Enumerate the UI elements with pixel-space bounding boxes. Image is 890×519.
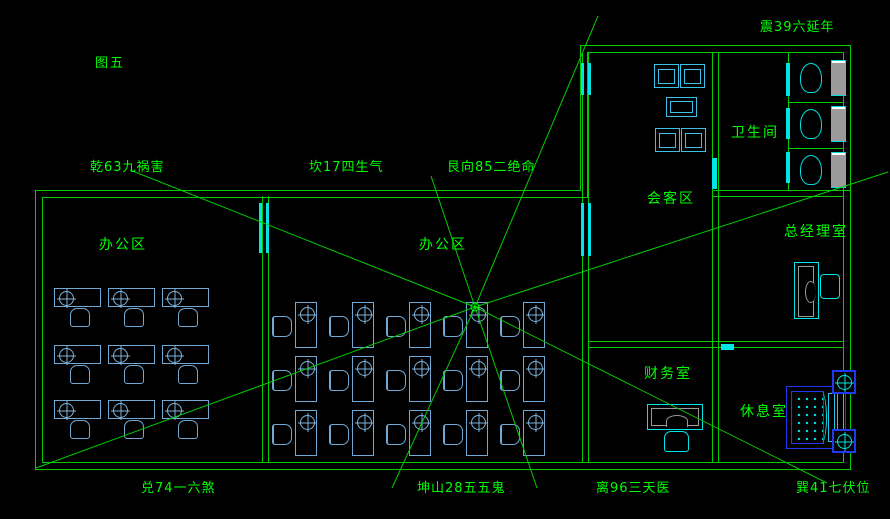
compass-label-gen: 艮向85二绝命 — [447, 161, 536, 174]
window-mark — [266, 203, 269, 253]
chair — [272, 424, 292, 445]
chair — [500, 370, 520, 391]
crosshair-icon — [837, 434, 852, 449]
chair — [124, 308, 144, 327]
desk — [108, 345, 155, 364]
desk — [409, 356, 431, 402]
figure-title: 图五 — [95, 57, 125, 70]
chair — [329, 316, 349, 337]
desk — [162, 345, 209, 364]
window-mark — [721, 344, 734, 350]
finance-desk — [647, 404, 703, 430]
window-mark — [588, 203, 591, 256]
computer-target-icon — [357, 361, 372, 376]
chair — [329, 370, 349, 391]
bed-arc — [815, 391, 827, 444]
computer-target-icon — [167, 348, 182, 363]
room-label-bathroom: 卫生间 — [731, 126, 779, 140]
computer-target-icon — [528, 361, 543, 376]
chair — [124, 365, 144, 384]
desk — [409, 302, 431, 348]
compass-label-kun: 坤山28五五鬼 — [417, 482, 506, 495]
chair — [70, 365, 90, 384]
computer-target-icon — [167, 291, 182, 306]
computer-target-icon — [59, 291, 74, 306]
window-mark — [786, 108, 790, 139]
desk — [466, 356, 488, 402]
computer-target-icon — [357, 307, 372, 322]
desk — [295, 356, 317, 402]
desk — [54, 345, 101, 364]
desk — [162, 288, 209, 307]
computer-target-icon — [300, 415, 315, 430]
room-label-reception: 会客区 — [647, 192, 695, 206]
chair — [443, 370, 463, 391]
desk — [162, 400, 209, 419]
computer-target-icon — [414, 415, 429, 430]
armchair — [681, 128, 706, 152]
computer-target-icon — [471, 307, 486, 322]
chair — [70, 420, 90, 439]
computer-target-icon — [113, 291, 128, 306]
computer-target-icon — [471, 415, 486, 430]
chair — [70, 308, 90, 327]
compass-label-dui: 兑74一六煞 — [141, 482, 216, 495]
window-mark — [786, 63, 790, 96]
desk — [523, 302, 545, 348]
room-label-rest-room: 休息室 — [740, 405, 788, 419]
computer-target-icon — [59, 348, 74, 363]
computer-target-icon — [414, 307, 429, 322]
desk — [352, 410, 374, 456]
chair — [386, 370, 406, 391]
window-mark — [712, 158, 717, 189]
chair — [272, 370, 292, 391]
computer-target-icon — [357, 415, 372, 430]
toilet — [800, 106, 846, 142]
armchair — [680, 64, 705, 88]
room-label-finance: 财务室 — [644, 367, 692, 381]
crosshair-icon — [837, 375, 852, 390]
coffee-table — [666, 97, 697, 117]
chair — [500, 424, 520, 445]
desk — [352, 356, 374, 402]
window-mark — [786, 152, 790, 183]
chair — [500, 316, 520, 337]
computer-target-icon — [300, 361, 315, 376]
computer-target-icon — [113, 348, 128, 363]
desk — [54, 400, 101, 419]
window-mark — [581, 203, 584, 256]
armchair — [655, 128, 680, 152]
desk — [108, 400, 155, 419]
chair — [272, 316, 292, 337]
compass-label-li: 离96三天医 — [596, 482, 671, 495]
computer-target-icon — [113, 403, 128, 418]
room-label-office-left: 办公区 — [99, 238, 147, 252]
desk — [523, 356, 545, 402]
desk — [295, 410, 317, 456]
window-mark — [588, 63, 591, 95]
computer-target-icon — [414, 361, 429, 376]
compass-label-zhen: 震39六延年 — [760, 21, 835, 34]
computer-target-icon — [528, 415, 543, 430]
desk — [466, 302, 488, 348]
computer-target-icon — [59, 403, 74, 418]
floor-plan: 图五 震39六延年乾63九祸害坎17四生气艮向85二绝命兑74一六煞坤山28五五… — [0, 0, 890, 519]
toilet — [800, 152, 846, 188]
chair — [443, 424, 463, 445]
gm-chair — [820, 274, 840, 299]
computer-target-icon — [167, 403, 182, 418]
compass-label-xun: 巽41七伏位 — [796, 482, 871, 495]
computer-target-icon — [528, 307, 543, 322]
room-label-gm-office: 总经理室 — [784, 225, 848, 239]
computer-target-icon — [471, 361, 486, 376]
armchair — [654, 64, 679, 88]
desk — [108, 288, 155, 307]
wall-fixture-icon — [832, 370, 856, 394]
finance-chair — [664, 431, 689, 452]
compass-label-qian: 乾63九祸害 — [90, 161, 165, 174]
chair — [178, 420, 198, 439]
chair — [443, 316, 463, 337]
room-label-office-center: 办公区 — [419, 238, 467, 252]
desk — [523, 410, 545, 456]
chair — [386, 316, 406, 337]
chair — [124, 420, 144, 439]
desk — [295, 302, 317, 348]
window-mark — [259, 203, 262, 253]
chair — [329, 424, 349, 445]
chair — [178, 365, 198, 384]
chair — [178, 308, 198, 327]
toilet — [800, 60, 846, 96]
desk — [409, 410, 431, 456]
chair — [386, 424, 406, 445]
gm-desk — [794, 262, 819, 319]
desk — [466, 410, 488, 456]
wall-fixture-icon — [832, 429, 856, 453]
computer-target-icon — [300, 307, 315, 322]
window-mark — [581, 63, 584, 95]
compass-label-kan: 坎17四生气 — [309, 161, 384, 174]
desk — [352, 302, 374, 348]
desk — [54, 288, 101, 307]
